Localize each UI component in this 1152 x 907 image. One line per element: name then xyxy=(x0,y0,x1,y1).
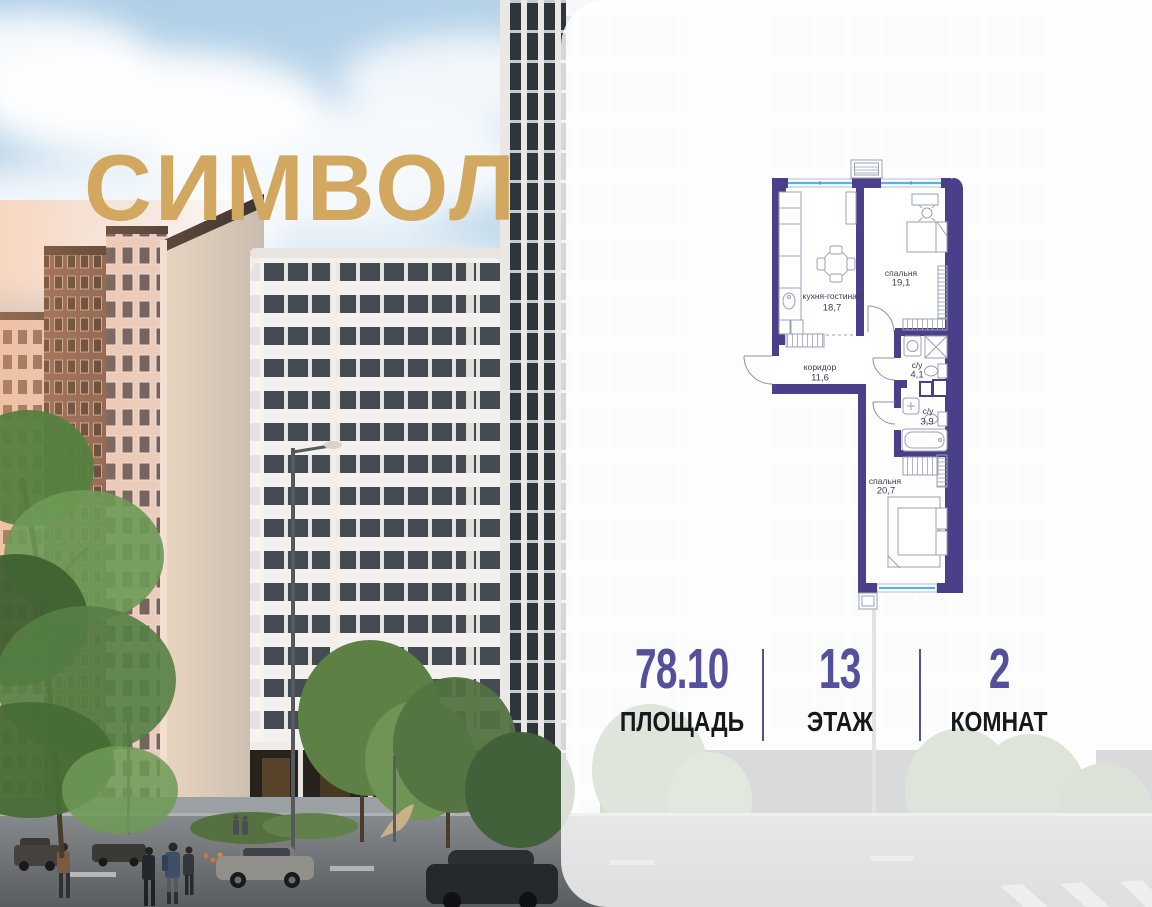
room-area: 20,7 xyxy=(877,486,896,497)
room-area: 4,1 xyxy=(910,370,923,381)
room-label: кухня-гостиная xyxy=(803,291,862,301)
room-area: 3,9 xyxy=(920,417,933,428)
room-area: 19,1 xyxy=(892,278,911,289)
floorplan-drawing xyxy=(738,152,974,618)
stat-floor-value: 13 xyxy=(819,640,861,698)
right-tower xyxy=(500,0,566,832)
stat-floor-label: ЭТАЖ xyxy=(769,707,910,736)
stat-rooms: 2 КОМНАТ xyxy=(913,640,1085,736)
room-area: 11,6 xyxy=(811,373,829,384)
stat-area-label: ПЛОЩАДЬ xyxy=(611,707,752,736)
room-label: с/у xyxy=(923,406,934,416)
floorplan: кухня-гостиная 18,7 спальня 19,1 коридор… xyxy=(738,152,974,618)
stat-floor: 13 ЭТАЖ xyxy=(754,640,926,736)
stat-rooms-label: КОМНАТ xyxy=(928,707,1069,736)
room-label: коридор xyxy=(804,362,836,372)
stat-rooms-value: 2 xyxy=(989,640,1010,698)
room-area: 18,7 xyxy=(823,303,842,314)
brand-logo: СИМВОЛ xyxy=(84,138,518,238)
room-label: спальня xyxy=(869,476,901,486)
listing-card: СИМВОЛ xyxy=(0,0,1152,907)
room-label: с/у xyxy=(912,360,923,370)
stat-area: 78.10 ПЛОЩАДЬ xyxy=(596,640,768,736)
stat-area-value: 78.10 xyxy=(635,640,729,698)
room-label: спальня xyxy=(885,268,917,278)
